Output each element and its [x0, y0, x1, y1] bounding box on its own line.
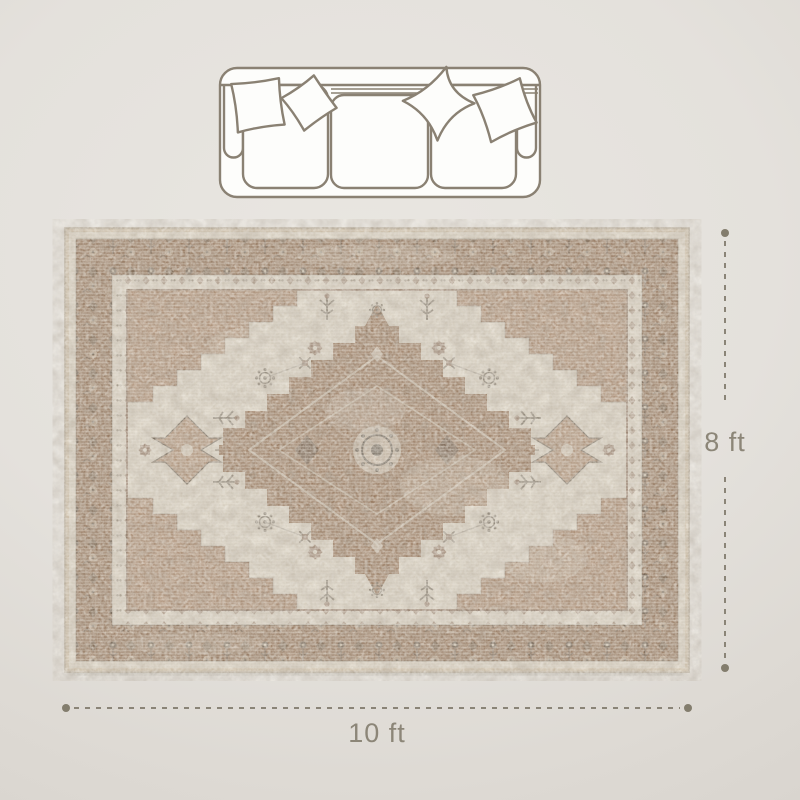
- dimension-endpoint-dot: [684, 704, 692, 712]
- dimension-endpoint-dot: [721, 229, 729, 237]
- width-dimension-label: 10 ft: [348, 718, 406, 748]
- product-dimension-diagram: 8 ft 10 ft: [0, 0, 800, 800]
- rug-image: [65, 228, 689, 675]
- dimension-endpoint-dot: [62, 704, 70, 712]
- height-dimension: 8 ft: [704, 229, 746, 672]
- rug-distress-texture: [65, 228, 689, 672]
- width-dimension: 10 ft: [62, 704, 692, 748]
- scene-canvas: 8 ft 10 ft: [0, 0, 800, 800]
- sofa-illustration: [210, 57, 550, 197]
- sofa-seat-middle: [331, 95, 428, 188]
- dimension-endpoint-dot: [721, 664, 729, 672]
- height-dimension-label: 8 ft: [704, 427, 746, 457]
